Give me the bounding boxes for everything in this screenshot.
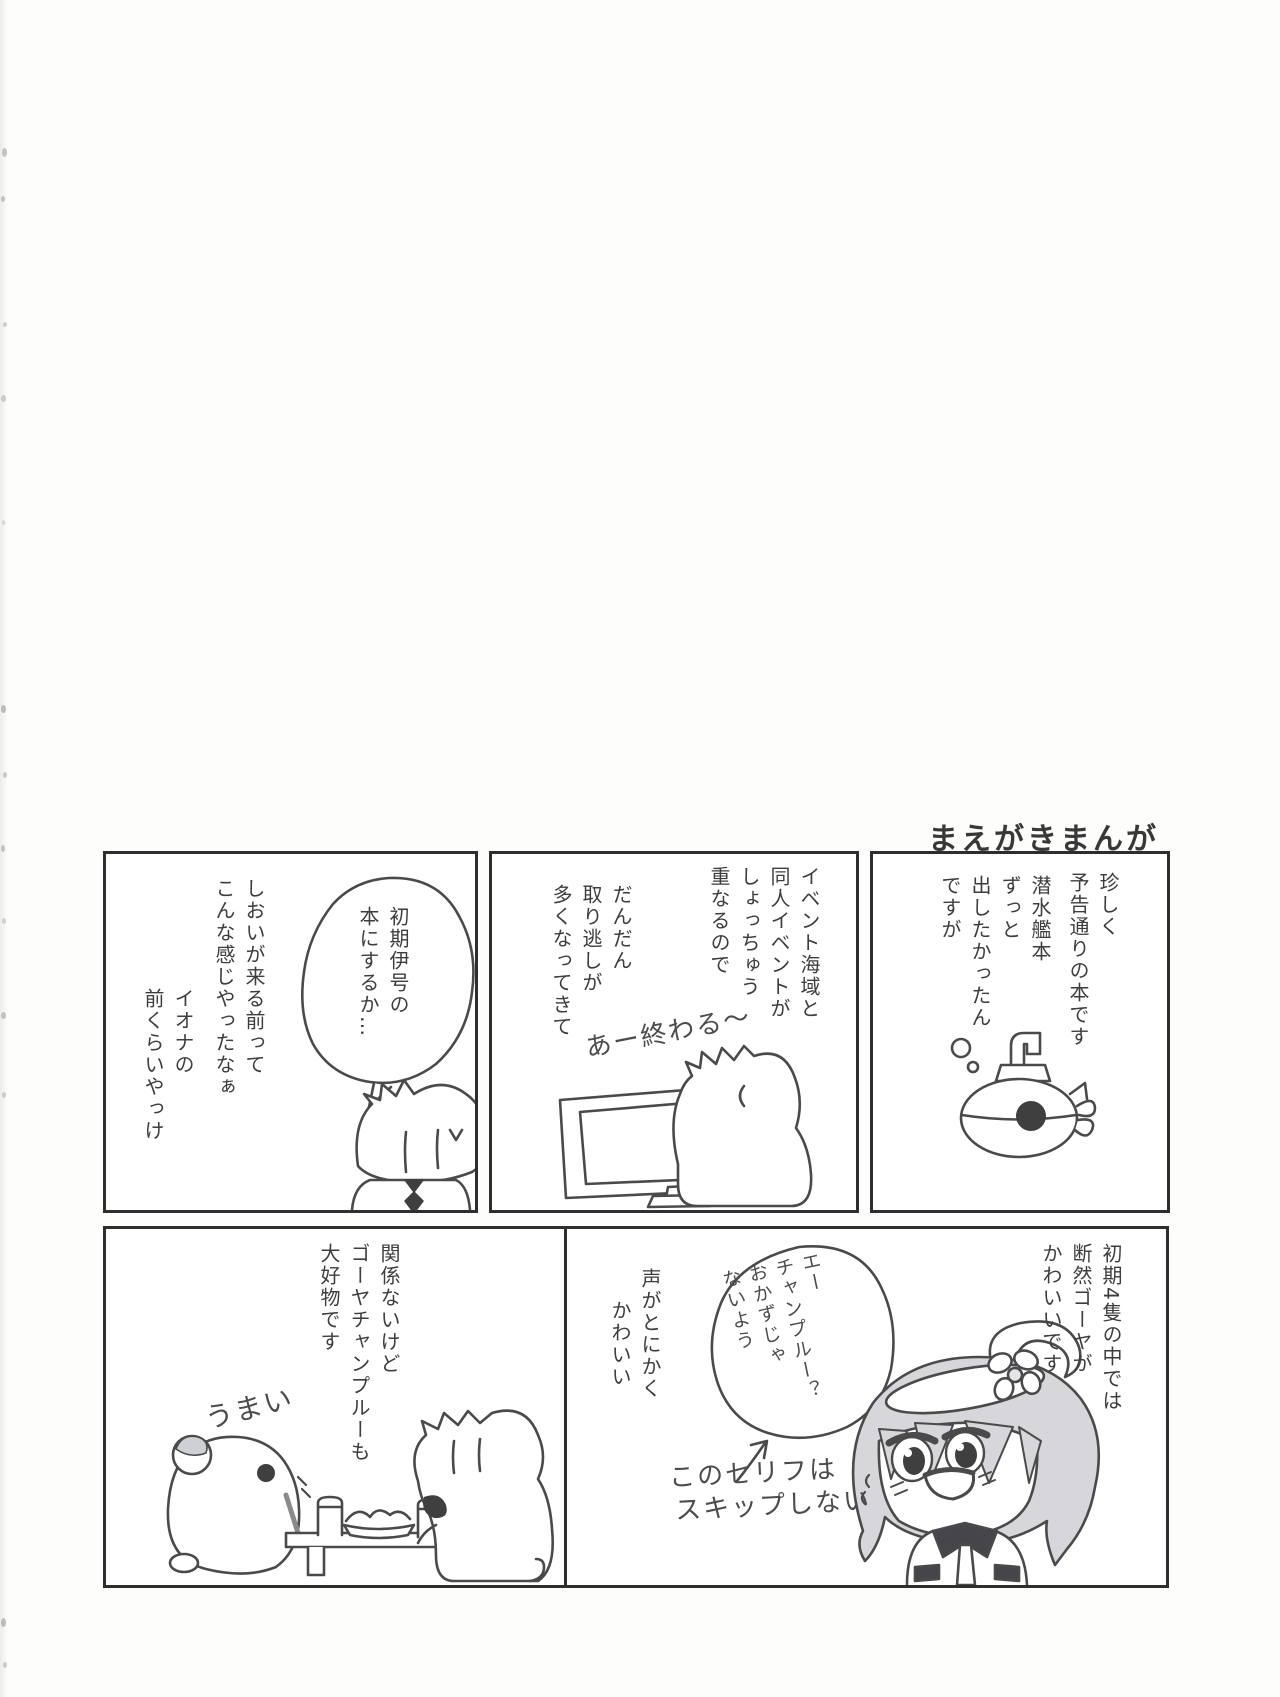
bubble-line: 本にするか… bbox=[353, 906, 383, 1038]
narration-line: 多くなってきて bbox=[546, 884, 576, 1038]
narration-line: ずっと bbox=[995, 875, 1025, 1029]
side-note: 声がとにかく かわいい bbox=[605, 1268, 665, 1400]
panel-top-middle: あー終わる〜 イベント海域と 同人イベントが しょっちゅう 重なるので だんだん… bbox=[489, 851, 859, 1213]
narration-line: しおいが来る前って bbox=[239, 878, 269, 1098]
narration-block: イベント海域と 同人イベントが しょっちゅう 重なるので bbox=[704, 866, 824, 1020]
narration-line: 同人イベントが bbox=[764, 866, 794, 1020]
narration-line: かわいいです bbox=[1036, 1243, 1066, 1412]
narration-line: だんだん bbox=[606, 884, 636, 1038]
panel-bottom-left: うまい 関係ないけど ゴーヤチャンプルーも 大好物です bbox=[103, 1226, 567, 1588]
narration-block: しおいが来る前って こんな感じやったなぁ bbox=[209, 878, 269, 1098]
narration-line: 予告通りの本です bbox=[1063, 872, 1093, 1048]
narration-line: イベント海域と bbox=[794, 866, 824, 1020]
narration-line: こんな感じやったなぁ bbox=[209, 878, 239, 1098]
note-line: かわいい bbox=[605, 1268, 635, 1400]
narration-block: イオナの 前くらいやっけ bbox=[138, 988, 198, 1142]
narration-line: 前くらいやっけ bbox=[138, 988, 168, 1142]
narration-block: 潜水艦本 ずっと 出したかったん ですが bbox=[935, 875, 1055, 1029]
narration-line: イオナの bbox=[168, 988, 198, 1142]
bubble-text: 初期伊号の 本にするか… bbox=[353, 906, 413, 1038]
narration-line: 初期4隻の中では bbox=[1096, 1243, 1126, 1412]
narration-line: 重なるので bbox=[704, 866, 734, 1020]
panel-top-left: 初期伊号の 本にするか… しおいが来る前って こんな感じやったなぁ イオナの 前… bbox=[103, 851, 478, 1213]
bubble-line: 初期伊号の bbox=[383, 906, 413, 1038]
panel-top-right: 珍しく 予告通りの本です 潜水艦本 ずっと 出したかったん ですが bbox=[870, 851, 1170, 1213]
narration-block: 珍しく 予告通りの本です bbox=[1063, 872, 1123, 1048]
panel-bottom-right: 初期4隻の中では 断然ゴーヤが かわいいです エー チャンプルー？ おかずじゃ … bbox=[564, 1226, 1169, 1588]
narration-line: ですが bbox=[935, 875, 965, 1029]
narration-line: 珍しく bbox=[1093, 872, 1123, 1048]
narration-block: 初期4隻の中では 断然ゴーヤが かわいいです bbox=[1036, 1243, 1126, 1412]
narration-line: 関係ないけど bbox=[374, 1243, 404, 1463]
narration-line: ゴーヤチャンプルーも bbox=[344, 1243, 374, 1463]
narration-line: 大好物です bbox=[314, 1243, 344, 1463]
comic-page: { "page": { "title": "まえがきまんが" }, "color… bbox=[0, 0, 1280, 1697]
narration-line: しょっちゅう bbox=[734, 866, 764, 1020]
narration-block: 関係ないけど ゴーヤチャンプルーも 大好物です bbox=[314, 1243, 404, 1463]
narration-line: 出したかったん bbox=[965, 875, 995, 1029]
narration-line: 取り逃しが bbox=[576, 884, 606, 1038]
narration-line: 断然ゴーヤが bbox=[1066, 1243, 1096, 1412]
narration-line: 潜水艦本 bbox=[1025, 875, 1055, 1029]
note-line: 声がとにかく bbox=[635, 1268, 665, 1400]
narration-block: だんだん 取り逃しが 多くなってきて bbox=[546, 884, 636, 1038]
